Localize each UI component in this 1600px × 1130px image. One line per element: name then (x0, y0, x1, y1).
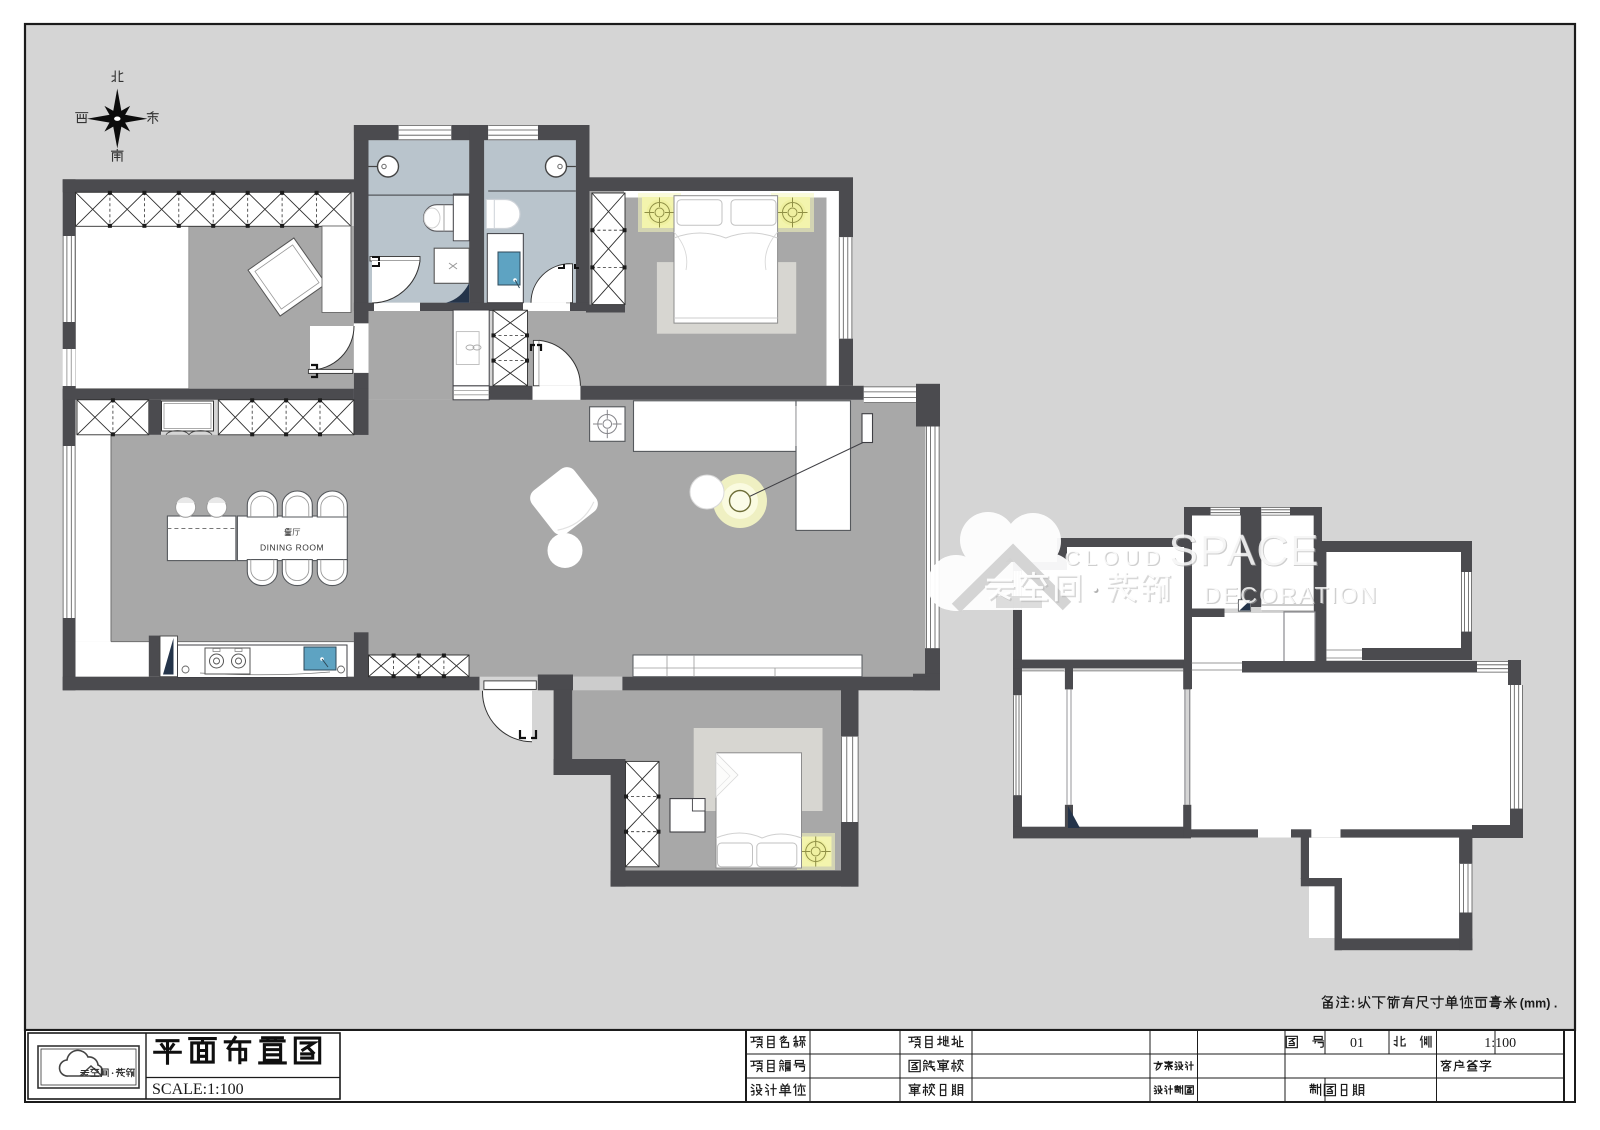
svg-text:(mm) .: (mm) . (1520, 997, 1558, 1011)
svg-text::: : (1351, 996, 1356, 1011)
svg-text:CLOUD: CLOUD (1064, 547, 1165, 570)
svg-text:SCALE:1:100: SCALE:1:100 (152, 1081, 244, 1098)
svg-text:SPACE: SPACE (1169, 526, 1320, 575)
svg-text:01: 01 (1350, 1036, 1364, 1051)
svg-text:DECORATION: DECORATION (1204, 582, 1379, 608)
svg-text:DINING ROOM: DINING ROOM (260, 543, 324, 553)
svg-text:1:100: 1:100 (1484, 1036, 1516, 1051)
